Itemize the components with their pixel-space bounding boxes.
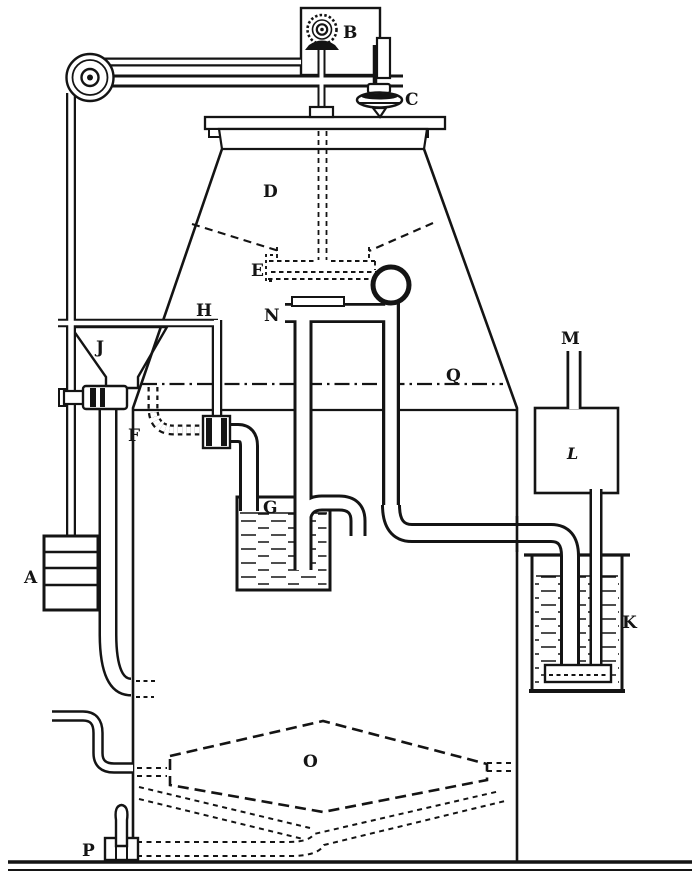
counterweight-a <box>44 536 98 610</box>
gauge-dial <box>373 267 409 303</box>
label-e: E <box>251 261 264 281</box>
label-n: N <box>264 306 280 326</box>
hopper-valve-band-2 <box>100 388 105 407</box>
vessel-lid <box>205 117 445 129</box>
motor-wheel-axle <box>320 28 324 32</box>
label-h: H <box>196 301 212 321</box>
union-fitting-band-right <box>221 418 227 446</box>
pulley-axle <box>87 75 93 81</box>
apparatus-diagram: A B C D E F G H J K L M N O P Q <box>0 0 700 881</box>
label-o: O <box>303 752 318 772</box>
label-m: M <box>561 329 580 349</box>
label-j: J <box>94 338 104 358</box>
hopper-valve-stem <box>64 391 84 404</box>
label-p: P <box>82 841 95 861</box>
label-a: A <box>23 568 38 588</box>
rod-foot-flange <box>310 107 333 117</box>
union-fitting-band-left <box>206 418 212 446</box>
hopper-valve-band-1 <box>90 388 96 407</box>
patent-figure-page: A B C D E F G H J K L M N O P Q <box>0 0 700 881</box>
vessel-neck <box>219 129 427 149</box>
valve-c-disc-band <box>362 94 398 100</box>
drain-valve-p-handle <box>116 805 128 846</box>
jar-k-foot <box>545 665 611 682</box>
valve-c-guide <box>377 38 390 78</box>
g-liquid <box>241 513 327 587</box>
label-k: K <box>622 613 638 633</box>
label-l: L <box>566 444 578 463</box>
pipe-n-step <box>292 297 344 306</box>
label-q: Q <box>446 366 461 386</box>
label-f: F <box>128 426 140 446</box>
label-b: B <box>343 23 357 43</box>
label-d: D <box>263 182 278 202</box>
label-g: G <box>263 498 278 518</box>
label-c: C <box>405 90 419 110</box>
